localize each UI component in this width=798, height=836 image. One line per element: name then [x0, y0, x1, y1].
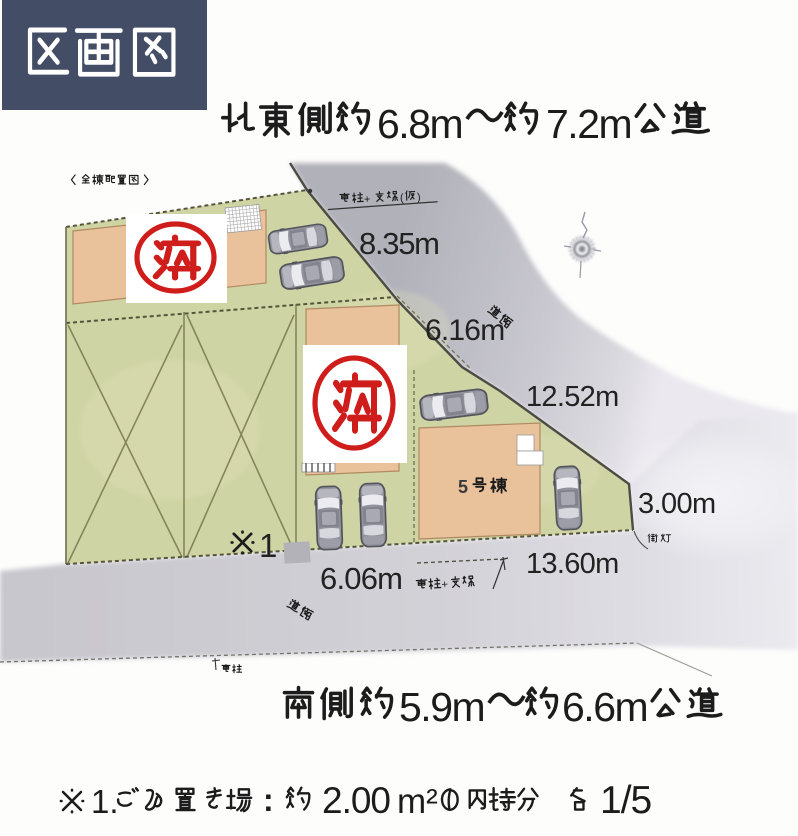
svg-text:6.8m: 6.8m [377, 101, 462, 147]
svg-text:5: 5 [458, 477, 468, 497]
svg-text:+: + [364, 194, 371, 206]
svg-text:6.6m: 6.6m [562, 684, 647, 730]
svg-text:12.52m: 12.52m [526, 381, 619, 413]
svg-text:5.9m: 5.9m [399, 684, 484, 730]
svg-text:7.2m: 7.2m [546, 101, 631, 147]
svg-text::: : [263, 782, 274, 818]
svg-text:1/5: 1/5 [600, 779, 652, 822]
svg-text:13.60m: 13.60m [526, 548, 619, 580]
svg-text:8.35m: 8.35m [359, 226, 439, 261]
svg-text:m²: m² [397, 782, 438, 821]
svg-text:1: 1 [259, 527, 277, 564]
svg-text:): ) [417, 191, 421, 203]
svg-text:2.00: 2.00 [322, 780, 390, 821]
svg-text:6.16m: 6.16m [425, 314, 504, 347]
svg-text:+: + [441, 579, 448, 591]
svg-text:6.06m: 6.06m [320, 561, 402, 596]
svg-text:1.: 1. [91, 783, 119, 820]
svg-text:3.00m: 3.00m [638, 488, 716, 520]
